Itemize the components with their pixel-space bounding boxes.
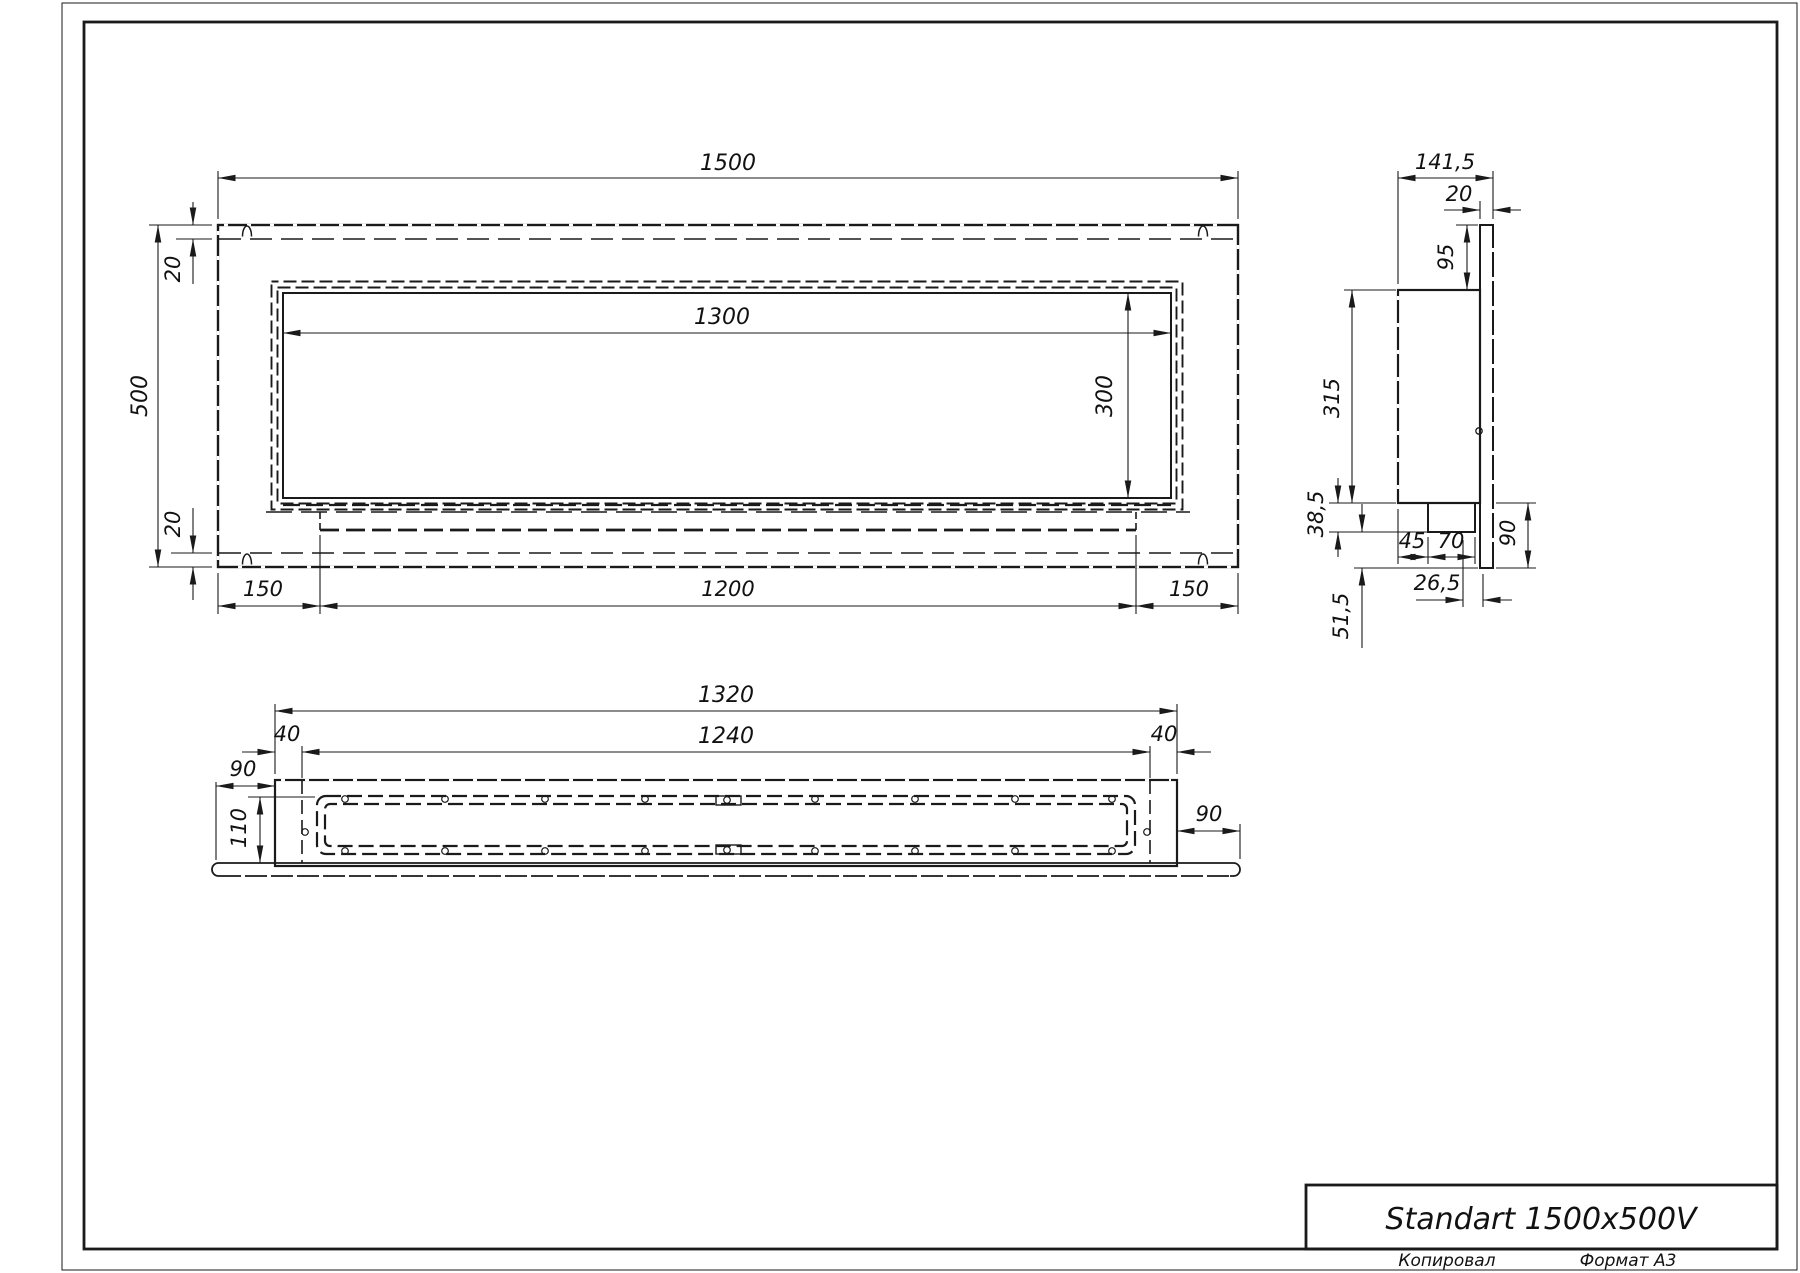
footer-format-label: Формат А3: [1580, 1251, 1677, 1271]
dim-plate-thickness: 20: [1446, 182, 1473, 206]
dim-top-overhang: 95: [1434, 244, 1458, 271]
dim-depth: 141,5: [1415, 150, 1475, 174]
dim-opening-width: 1300: [694, 305, 750, 330]
dim-front-height: 500: [128, 375, 153, 417]
drawing-title: Standart 1500x500V: [1385, 1202, 1699, 1237]
dim-right-margin: 150: [1169, 577, 1209, 601]
dim-front-top-offset: 20: [161, 256, 185, 283]
burner-outline: [1428, 503, 1475, 532]
dim-lower-section: 51,5: [1329, 593, 1353, 640]
dim-wall-right: 40: [1151, 722, 1178, 746]
dim-box-height: 315: [1320, 378, 1344, 418]
dim-front-width: 1500: [700, 151, 756, 176]
dim-plate-gap: 26,5: [1414, 571, 1461, 595]
side-view: 141,5 20 95 315 38,5 45 70 90: [1304, 150, 1536, 648]
dim-flange-left: 90: [230, 757, 257, 781]
dim-burner-drop: 38,5: [1304, 491, 1328, 538]
drawing-canvas: 1500 500 20 20 1300 300 150 1200 150: [0, 0, 1800, 1273]
drawing-page: 1500 500 20 20 1300 300 150 1200 150: [0, 0, 1800, 1273]
front-plate-outline: [1480, 225, 1493, 568]
dim-front-bottom-offset: 20: [161, 511, 185, 538]
page-border: [62, 3, 1797, 1270]
dim-burner-width: 70: [1438, 529, 1465, 553]
mount-mark-icon: [243, 226, 1208, 565]
dim-inner-width: 1240: [698, 724, 754, 749]
drawing-frame: [84, 22, 1777, 1249]
dim-flange-right: 90: [1196, 802, 1223, 826]
dim-bottom-overhang: 90: [1496, 520, 1520, 547]
dim-tray-width: 1200: [701, 577, 754, 601]
footer-copied-label: Копировал: [1398, 1251, 1495, 1271]
side-box-outline: [1398, 290, 1480, 503]
front-view: 1500 500 20 20 1300 300 150 1200 150: [128, 151, 1238, 614]
dim-wall-left: 40: [274, 722, 301, 746]
dim-bottom-depth: 110: [227, 808, 251, 848]
bottom-view: 1320 1240 40 40 90 110 90: [212, 683, 1240, 876]
dim-burner-offset: 45: [1399, 529, 1426, 553]
dim-opening-height: 300: [1093, 375, 1118, 417]
title-block: Standart 1500x500V Копировал Формат А3: [1306, 1185, 1777, 1271]
front-view-outline: [218, 225, 1238, 567]
dim-left-margin: 150: [243, 577, 283, 601]
dim-body-width: 1320: [698, 683, 754, 708]
